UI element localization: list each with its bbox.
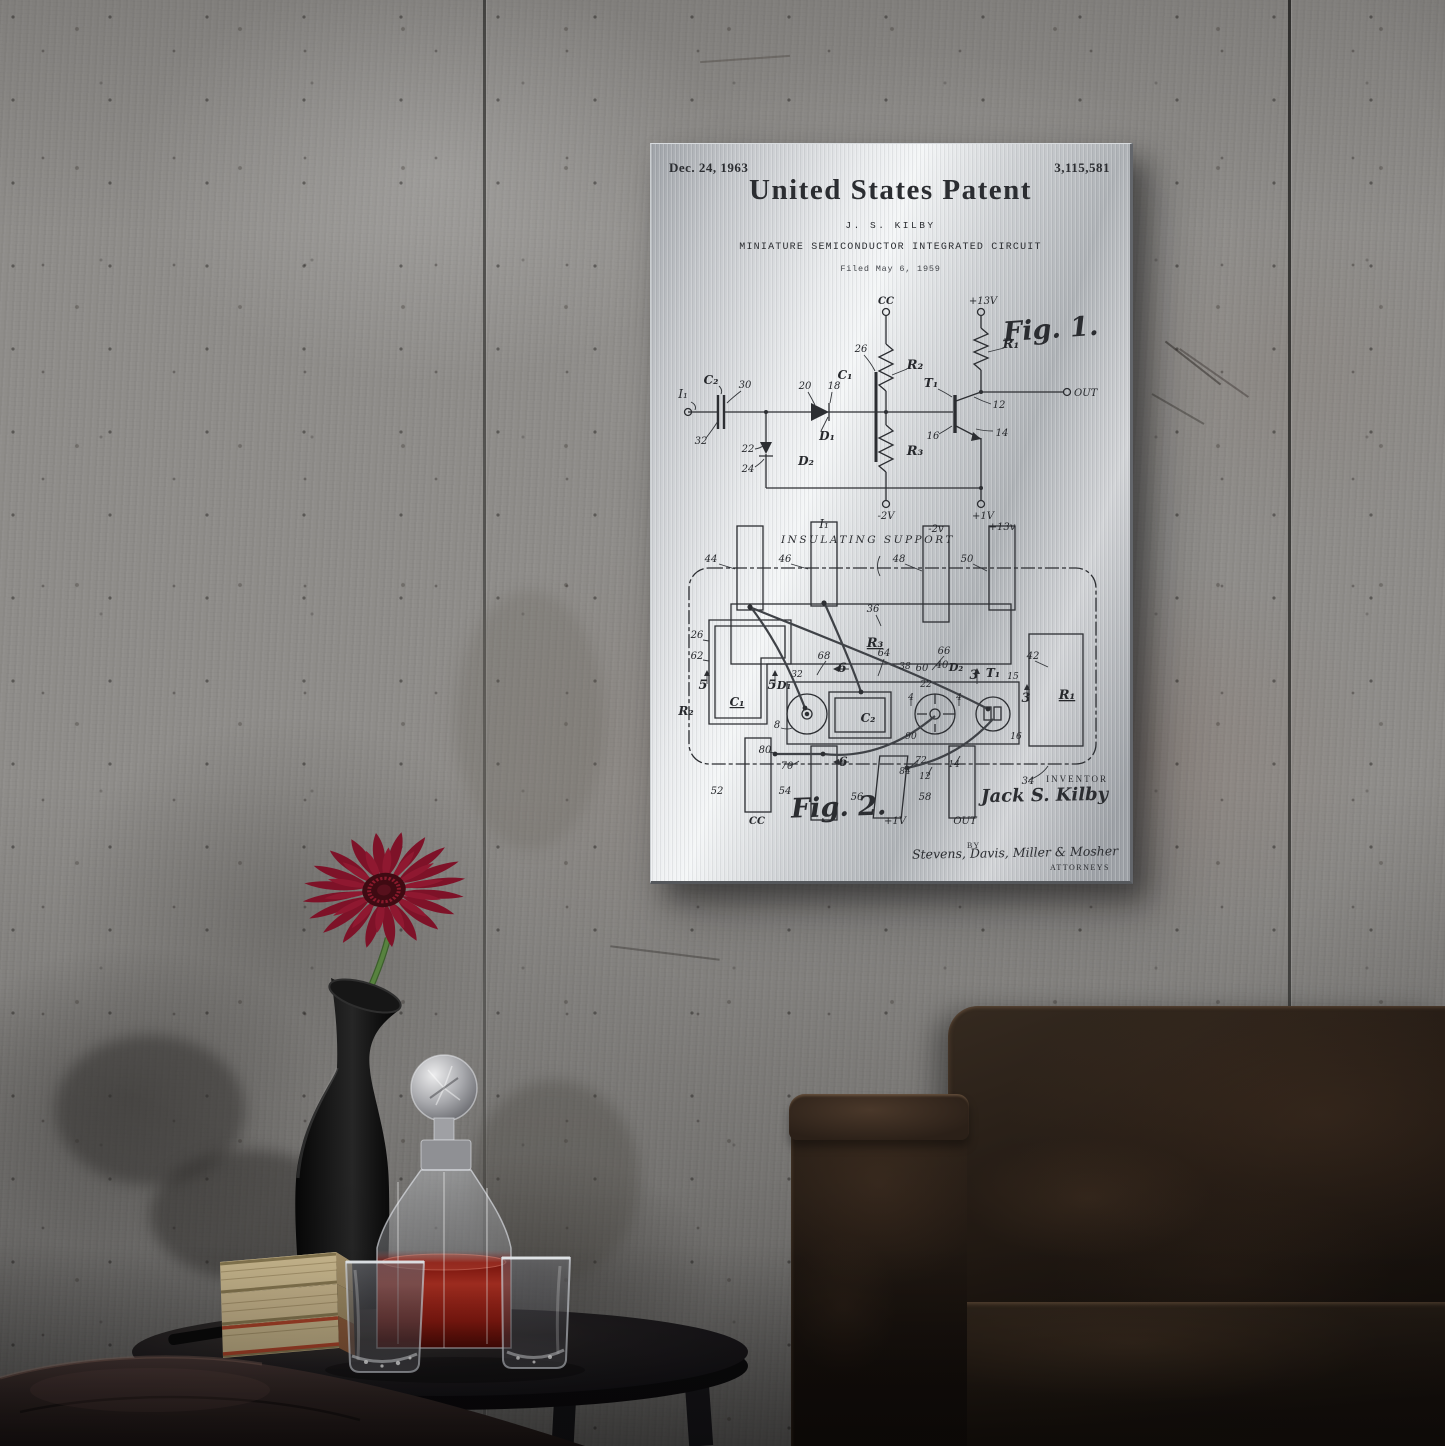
armchair-seat-cushion [940, 1302, 1445, 1446]
decanter-collar [421, 1140, 471, 1170]
armchair-backrest [948, 1006, 1445, 1316]
ottoman-sheen [30, 1368, 270, 1412]
armchair-armrest-top [789, 1094, 969, 1140]
armchair-armrest-front [791, 1132, 967, 1446]
stopper-neck [434, 1118, 454, 1140]
whiskey-glass-right [502, 1258, 570, 1368]
gerbera-flower [295, 822, 473, 959]
room-scene: Dec. 24, 1963 3,115,581 United States Pa… [0, 0, 1445, 1446]
whiskey-glass-left [346, 1262, 424, 1372]
book-stack [220, 1252, 355, 1358]
